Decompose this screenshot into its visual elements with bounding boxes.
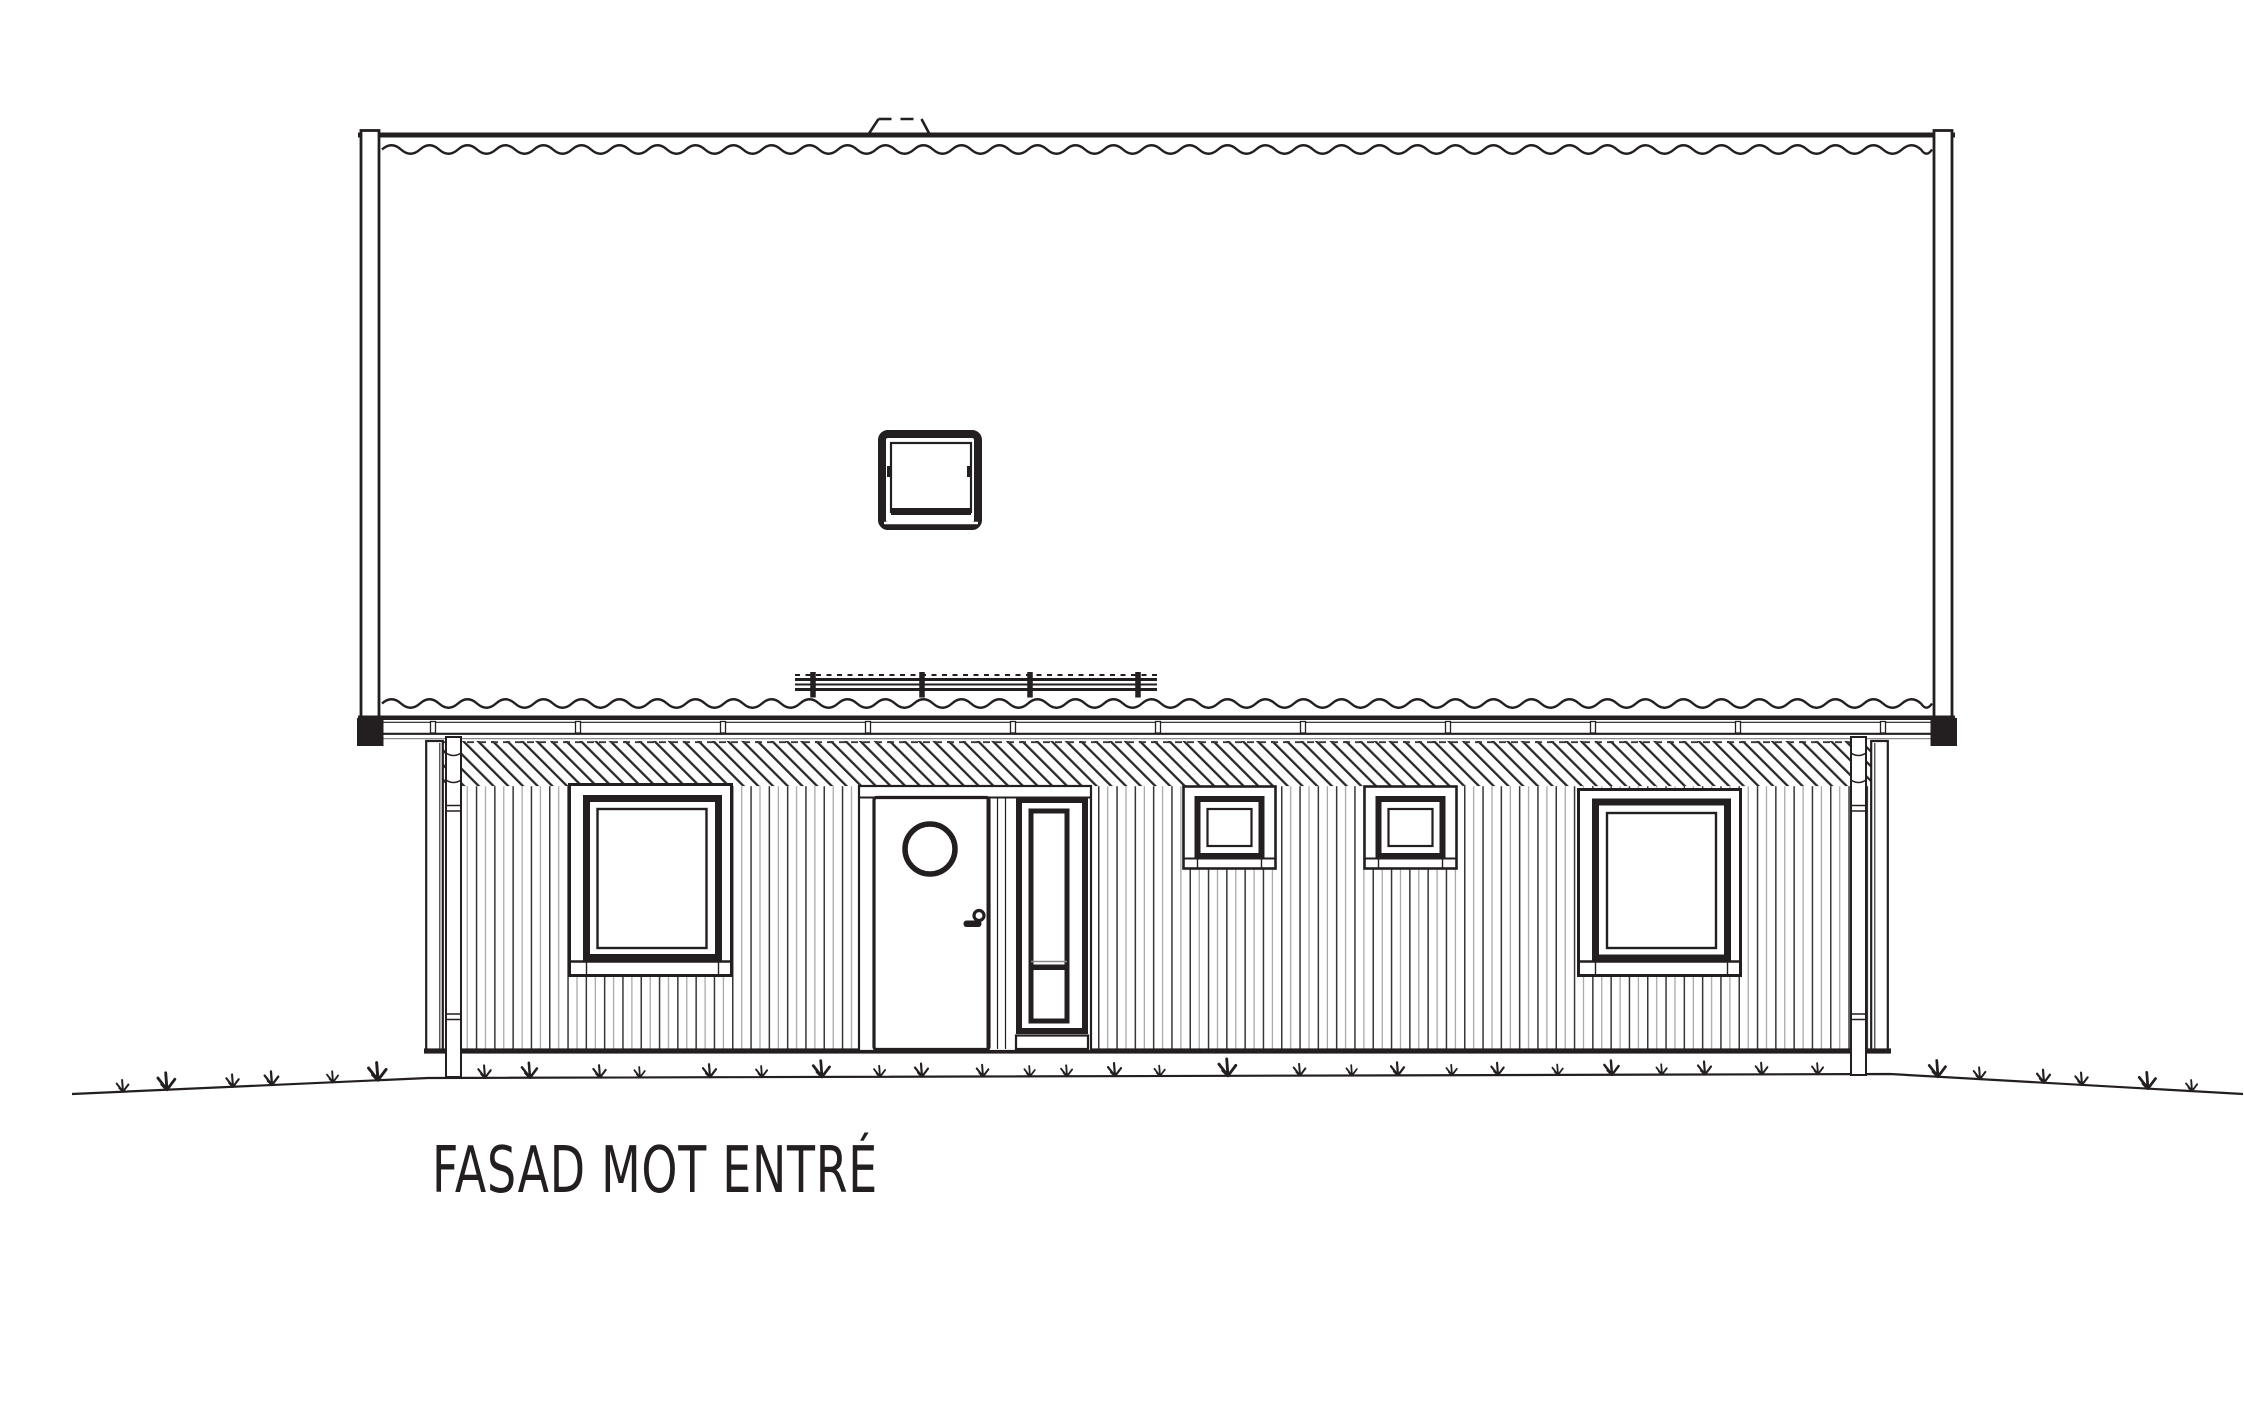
grass-tuft xyxy=(1491,1063,1503,1075)
gutter-bracket xyxy=(1881,722,1886,734)
grass-tuft xyxy=(117,1080,129,1092)
grass-tuft xyxy=(874,1066,885,1077)
eave-line xyxy=(358,716,1955,721)
wall-base-line xyxy=(424,1048,1891,1053)
grass-tuft xyxy=(593,1065,605,1077)
rail-post xyxy=(919,672,925,698)
grass-tuft xyxy=(522,1063,537,1078)
gutter-bracket xyxy=(721,722,726,734)
grass-tuft xyxy=(813,1061,829,1077)
rail-post xyxy=(1135,672,1141,698)
grass-tuft xyxy=(478,1065,490,1077)
grass-tuft xyxy=(2186,1080,2197,1091)
entrance-door xyxy=(859,786,1091,1051)
grass-tuft xyxy=(226,1074,238,1086)
grass-tuft xyxy=(1391,1062,1404,1075)
grass-tuft xyxy=(1656,1064,1666,1074)
gutter-bracket xyxy=(1301,722,1306,734)
downpipe-right xyxy=(1851,737,1866,1075)
grass-tuft xyxy=(1346,1065,1356,1075)
gutter-bracket xyxy=(1591,722,1596,734)
corner-board-right xyxy=(1871,741,1888,1052)
ground xyxy=(72,1059,2243,1094)
grass-tuft xyxy=(2075,1073,2087,1085)
window-right xyxy=(1578,790,1741,976)
roof-window-hinge-left xyxy=(887,466,892,477)
roof-window xyxy=(882,434,978,526)
grass-tuft xyxy=(2139,1072,2155,1088)
bargeboard-cap-right xyxy=(1931,718,1958,746)
grass-tuft xyxy=(1974,1067,1986,1079)
snow-guard-rail xyxy=(795,672,1157,698)
hatched-frieze-band xyxy=(443,741,1873,786)
grass-tuft xyxy=(158,1073,175,1090)
grass-tuft xyxy=(1604,1061,1618,1075)
gutter-bracket xyxy=(866,722,871,734)
grass-tuft xyxy=(915,1064,928,1077)
roof-window-glass xyxy=(891,443,971,512)
sidelight-bottom-panel xyxy=(1016,1036,1088,1050)
grass-tuft xyxy=(1929,1060,1945,1076)
grass-tuft xyxy=(977,1065,989,1077)
roof xyxy=(357,119,1957,746)
grass-tuft xyxy=(1061,1065,1072,1076)
grass-tuft xyxy=(1154,1066,1164,1076)
ground-line xyxy=(72,1074,2243,1094)
grass-tuft xyxy=(369,1063,387,1081)
grass-tuft xyxy=(634,1067,644,1077)
grass-tuft xyxy=(1294,1064,1306,1076)
downpipe-left xyxy=(446,737,461,1077)
grass-tuft xyxy=(1552,1065,1562,1075)
gutter-bracket xyxy=(576,722,581,734)
window-left xyxy=(569,785,732,976)
gutter-brackets xyxy=(431,722,1886,734)
roof-edge-wave xyxy=(382,145,1932,153)
grass-tuft xyxy=(1756,1063,1768,1075)
door-porthole-window xyxy=(905,824,955,874)
rail-post xyxy=(810,672,816,698)
gutter-bracket xyxy=(1736,722,1741,734)
sidelight-glass xyxy=(1031,811,1067,1021)
door-sidelight xyxy=(1016,800,1088,1049)
grass-tuft xyxy=(2037,1070,2050,1083)
drawing-title: FASAD MOT ENTRÉ xyxy=(432,1132,878,1208)
grass-tuft xyxy=(703,1064,716,1077)
small-window-right xyxy=(1365,787,1457,869)
eave-gutter xyxy=(358,716,1955,739)
ridge-line xyxy=(358,133,1955,138)
roof-window-hinge-right xyxy=(967,466,972,477)
gutter-bracket xyxy=(1011,722,1016,734)
gutter-bracket xyxy=(1156,722,1161,734)
grass-tuft xyxy=(1108,1063,1121,1076)
window-left-glass xyxy=(598,809,707,948)
roof-edge-waves xyxy=(382,145,1932,707)
roof-window-bottom-bar xyxy=(891,508,971,515)
elevation-drawing: FASAD MOT ENTRÉ xyxy=(0,0,2244,1417)
sidelight-transom xyxy=(1033,965,1065,971)
gutter-bracket xyxy=(1446,722,1451,734)
grass-tuft xyxy=(1219,1059,1236,1076)
gutter-bracket xyxy=(431,722,436,734)
grass-tuft xyxy=(1698,1062,1711,1075)
corner-board-left xyxy=(426,741,443,1052)
bargeboard-right xyxy=(1934,131,1952,719)
grass-tuft xyxy=(1812,1063,1823,1074)
grass-tuft xyxy=(265,1071,279,1085)
bargeboard-left xyxy=(361,131,379,719)
window-right-glass xyxy=(1607,813,1716,948)
grass-tuft xyxy=(756,1066,767,1077)
rail-post xyxy=(1027,672,1033,698)
small-window-left xyxy=(1184,787,1276,869)
grass-tuft xyxy=(327,1071,338,1082)
grass-tuft xyxy=(1446,1065,1456,1075)
bargeboard-cap-left xyxy=(357,718,384,746)
roof-edge-wave xyxy=(382,699,1932,707)
grass-tuft xyxy=(1024,1066,1034,1076)
